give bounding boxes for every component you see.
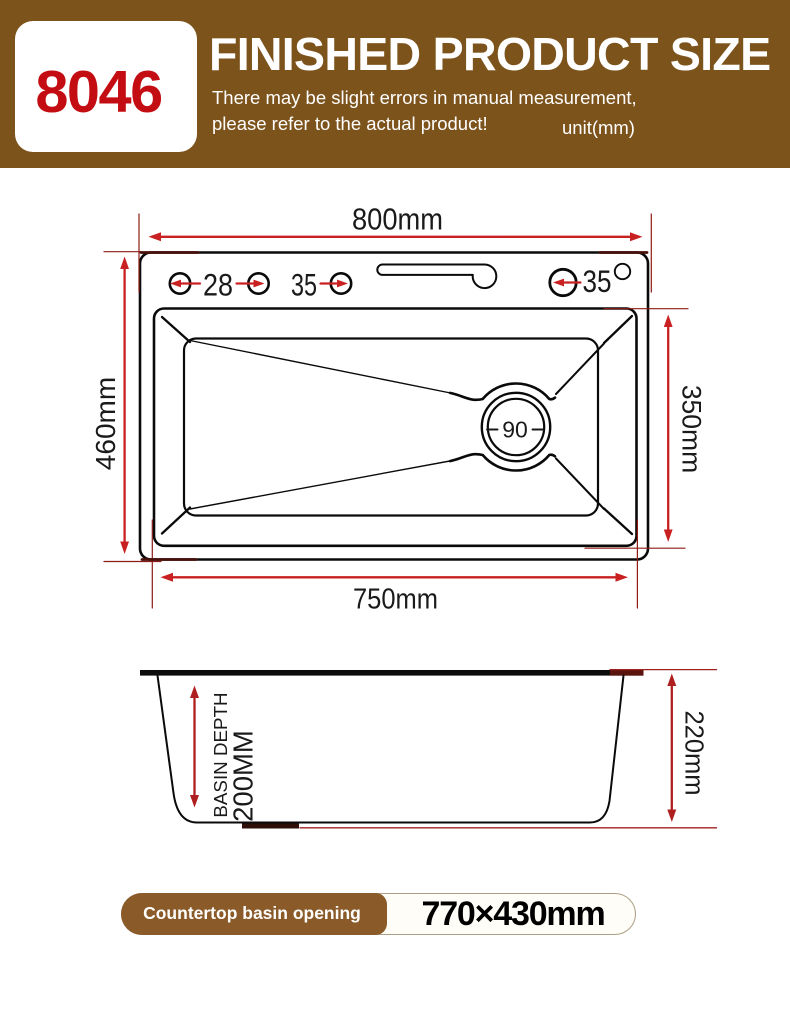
svg-text:350mm: 350mm [677,385,707,473]
svg-text:800mm: 800mm [352,203,443,237]
svg-text:460mm: 460mm [90,377,121,470]
svg-text:90: 90 [502,417,528,443]
svg-text:35: 35 [291,267,317,303]
svg-text:200MM: 200MM [228,730,259,822]
svg-text:35: 35 [583,263,612,299]
svg-text:28: 28 [203,267,233,303]
svg-text:220mm: 220mm [680,710,708,795]
svg-text:750mm: 750mm [353,584,438,616]
